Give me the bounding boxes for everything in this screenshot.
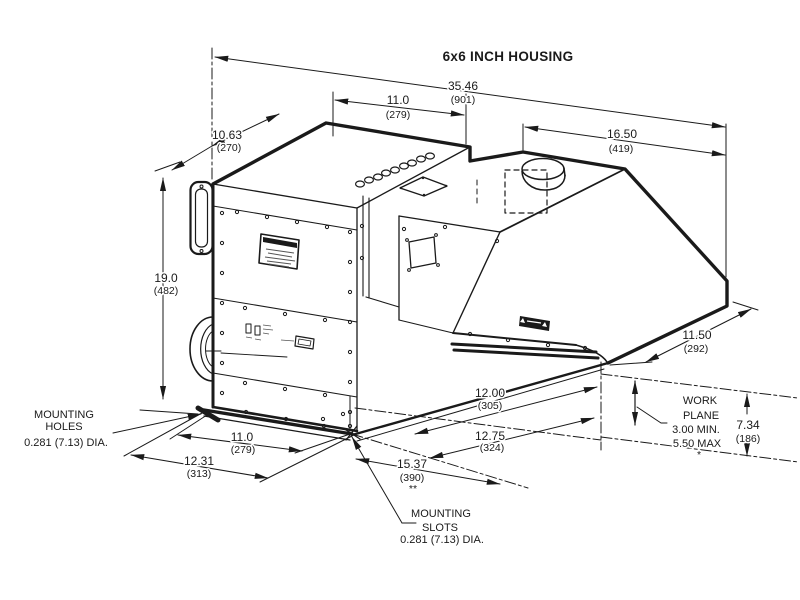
dim-base-front-width: 11.0 (279) xyxy=(178,430,302,456)
dim-base-right-outer-mm: (324) xyxy=(480,442,505,454)
mounting-holes-callout: MOUNTING HOLES 0.281 (7.13) DIA. xyxy=(24,409,201,449)
dim-right-top-width-value: 16.50 xyxy=(607,127,637,141)
warning-label-front xyxy=(259,234,299,269)
access-panel xyxy=(409,237,436,268)
housing-dimension-diagram: 35.46 (901) 11.0 (279) 10.63 (270) 19.0 … xyxy=(0,0,800,600)
dim-base-diagonal-note: ** xyxy=(409,483,417,495)
dim-top-inner-width-value: 11.0 xyxy=(387,93,410,107)
dim-base-front-overall-mm: (313) xyxy=(187,468,212,480)
dim-left-height-value: 19.0 xyxy=(154,271,178,285)
dim-left-height: 19.0 (482) xyxy=(154,178,179,399)
dim-overall-width-mm: (901) xyxy=(451,94,476,106)
work-plane-line1: WORK xyxy=(683,395,718,407)
dim-base-front-width-mm: (279) xyxy=(231,444,256,456)
work-plane-annotation: WORK PLANE 3.00 MIN. 5.50 MAX * xyxy=(635,381,722,461)
dim-top-inner-width: 11.0 (279) xyxy=(335,93,464,121)
housing-panel-edges xyxy=(213,147,625,431)
dim-base-front-width-value: 11.0 xyxy=(231,430,254,444)
warning-label-hood xyxy=(519,316,550,331)
work-plane-line2: PLANE xyxy=(683,410,719,422)
dim-right-top-width-mm: (419) xyxy=(609,143,634,155)
control-panel-cluster xyxy=(246,324,314,349)
dim-base-right-inner-mm: (305) xyxy=(478,400,503,412)
mounting-slots-line3: 0.281 (7.13) DIA. xyxy=(400,534,484,546)
housing-outline xyxy=(198,123,727,441)
dim-right-side-depth-value: 11.50 xyxy=(682,328,711,342)
side-handle xyxy=(191,182,213,254)
drawing-title: 6x6 INCH HOUSING xyxy=(443,49,574,64)
mounting-slots-callout: MOUNTING SLOTS 0.281 (7.13) DIA. xyxy=(352,437,484,546)
drawing-page: 35.46 (901) 11.0 (279) 10.63 (270) 19.0 … xyxy=(0,0,800,600)
dim-left-depth-mm: (270) xyxy=(217,142,242,154)
dim-work-plane-height-value: 7.34 xyxy=(736,418,760,432)
dim-base-front-overall: 12.31 (313) xyxy=(131,454,268,480)
dim-work-plane-height: 7.34 (186) xyxy=(736,394,761,456)
dim-base-front-overall-value: 12.31 xyxy=(184,454,214,468)
work-plane-line3: 3.00 MIN. xyxy=(672,424,720,436)
dim-base-diagonal-value: 15.37 xyxy=(397,457,427,471)
beam-cylinder xyxy=(505,159,565,214)
dim-overall-width-value: 35.46 xyxy=(448,79,478,93)
dim-top-inner-width-mm: (279) xyxy=(386,109,411,121)
mounting-holes-line2: HOLES xyxy=(45,421,82,433)
dim-left-depth-value: 10.63 xyxy=(212,128,242,142)
top-vent-holes xyxy=(356,153,435,187)
dim-left-depth: 10.63 (270) xyxy=(172,114,279,170)
dim-right-side-depth-mm: (292) xyxy=(684,343,709,355)
mounting-slots-line1: MOUNTING xyxy=(411,508,471,520)
side-wheel xyxy=(190,317,287,381)
dim-right-top-width: 16.50 (419) xyxy=(525,127,725,155)
work-plane-note: * xyxy=(697,449,701,461)
mounting-holes-line3: 0.281 (7.13) DIA. xyxy=(24,437,108,449)
dim-left-height-mm: (482) xyxy=(154,285,179,297)
mounting-holes-line1: MOUNTING xyxy=(34,409,94,421)
dim-base-diagonal: 15.37 (390) ** xyxy=(356,457,500,495)
dim-overall-width: 35.46 (901) xyxy=(215,57,725,127)
mounting-slots-line2: SLOTS xyxy=(422,522,458,534)
dim-base-right-outer-value: 12.75 xyxy=(475,429,505,443)
dim-work-plane-height-mm: (186) xyxy=(736,433,761,445)
dim-base-right-inner-value: 12.00 xyxy=(475,386,505,400)
top-aperture xyxy=(400,177,447,196)
